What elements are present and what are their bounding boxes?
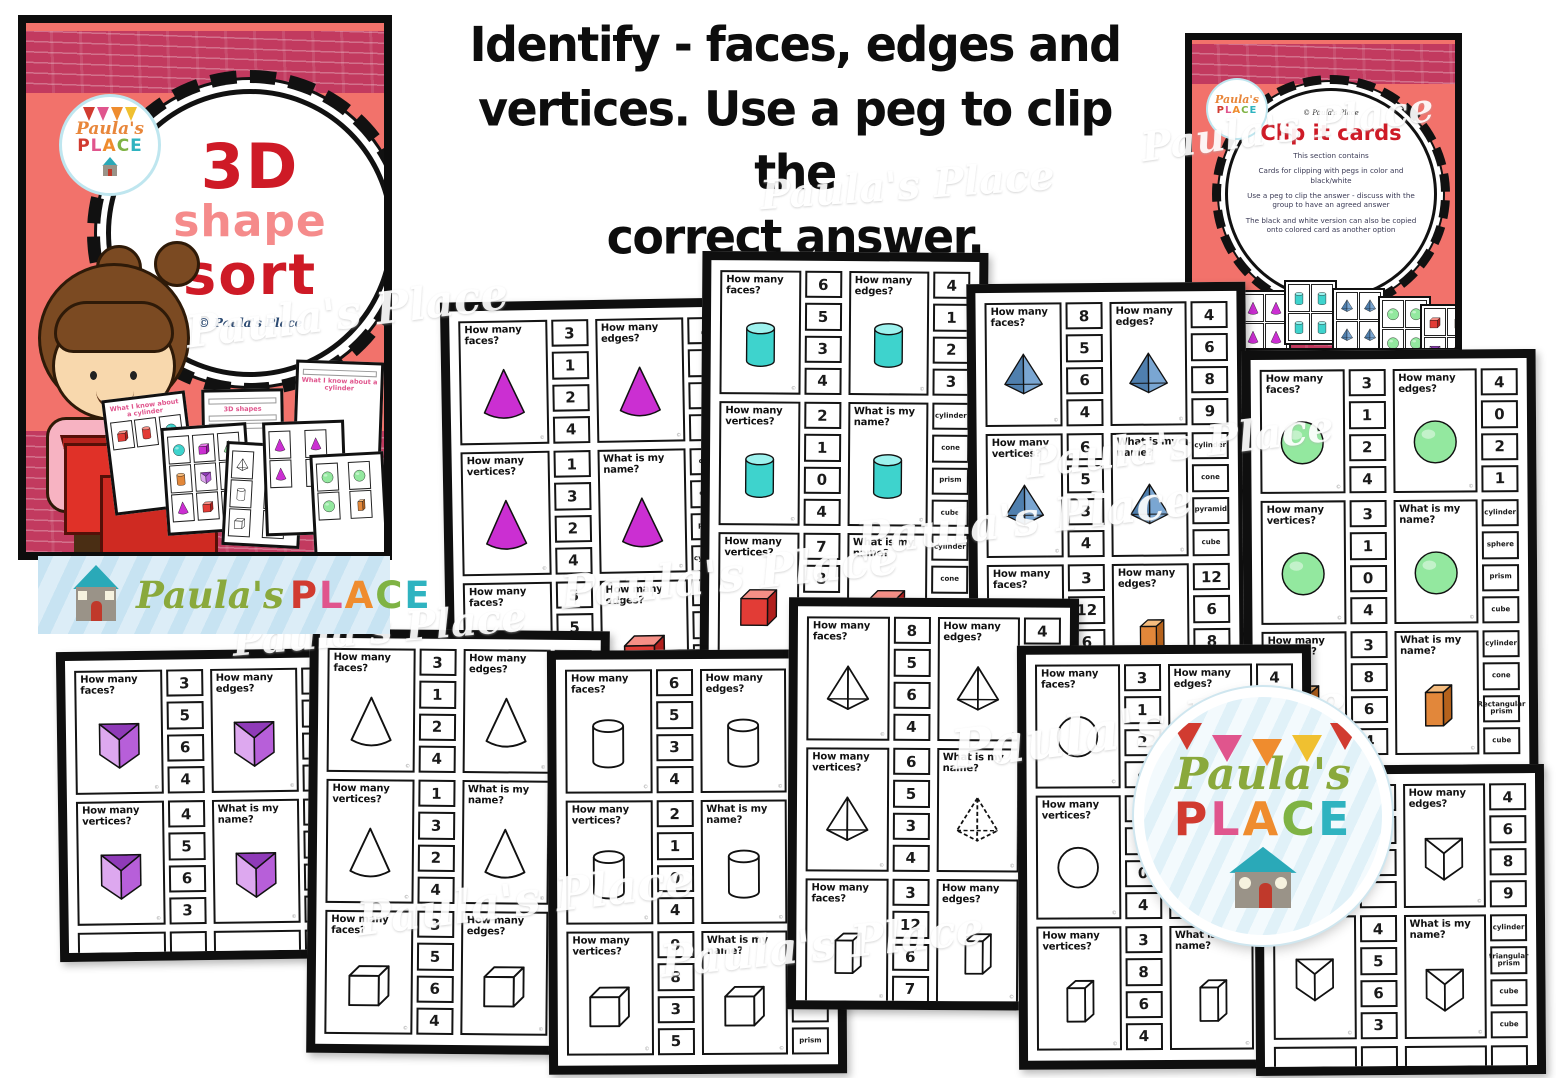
clip-card: How many faces? © 6534	[719, 270, 841, 395]
answer-option: 1	[933, 304, 970, 332]
card-question: What is my name?	[854, 407, 923, 429]
card-question: How many vertices?	[1042, 800, 1115, 822]
answer-options: 2104	[803, 402, 841, 526]
card-question: What is my name?	[603, 454, 680, 477]
house-icon	[64, 563, 128, 627]
card-question: How many faces?	[811, 883, 882, 905]
answer-option: 5	[166, 701, 203, 729]
answer-option: 4	[933, 272, 970, 300]
card-panel: What is my name? ©	[1394, 630, 1479, 755]
logo-script-text: Paula's	[1208, 94, 1266, 105]
answer-option: 6	[1191, 333, 1228, 361]
pyramid-thumbnail-icon	[1340, 328, 1354, 342]
answer-option: 8	[893, 617, 930, 644]
answer-option: 3	[551, 319, 588, 347]
cone-shape-icon	[342, 807, 397, 896]
card-question: How many faces?	[726, 275, 795, 297]
answer-option: 4	[1067, 530, 1104, 558]
cylinder-shape-icon	[863, 430, 913, 519]
answer-option: 3	[418, 812, 455, 840]
answer-options	[1491, 1045, 1529, 1076]
answer-option: 9	[657, 931, 694, 958]
clip-card: How many edges? © 4123	[848, 271, 970, 396]
sphere-thumbnail-icon	[1386, 307, 1400, 321]
clip-card: How many faces? © 3124	[327, 648, 457, 773]
copyright-mark: ©	[791, 386, 796, 392]
sphere-thumbnail-icon	[322, 499, 337, 514]
answer-option: 6	[1067, 433, 1104, 461]
clip-card: How many edges? © 4689	[1403, 783, 1527, 908]
answer-option: 8	[1065, 302, 1102, 330]
cube-shape-icon	[733, 560, 783, 649]
answer-options: 6534	[655, 669, 693, 793]
triprism-thumbnail-icon	[198, 470, 213, 485]
card-question: What is my name?	[1409, 919, 1480, 941]
answer-option: prism	[792, 1027, 829, 1054]
answer-option: 4	[555, 547, 592, 575]
copyright-mark: ©	[779, 1046, 784, 1052]
answer-option: 4	[1125, 1023, 1162, 1050]
clip-card: How many vertices? © 3104	[1261, 500, 1387, 625]
answer-option: 2	[1349, 434, 1386, 462]
clip-card: How many faces? © 6534	[565, 669, 693, 794]
triprism-shape-icon	[1419, 811, 1470, 900]
clip-title: Clip it cards	[1260, 121, 1401, 145]
copyright-mark: ©	[1336, 484, 1341, 490]
card-question: How many faces?	[993, 569, 1058, 591]
pyramid-shape-icon	[1126, 460, 1174, 549]
answer-option: 3	[1067, 498, 1104, 526]
answer-option: 4	[804, 367, 841, 395]
answer-option: 5	[656, 701, 693, 728]
answer-option: 6	[893, 748, 930, 775]
answer-options: 3564	[416, 911, 454, 1035]
worksheet-thumbnail-title: What I know about a cylinder	[301, 377, 377, 394]
answer-option: 1	[419, 681, 456, 709]
cube-thumbnail-icon	[200, 499, 215, 514]
copyright-mark: ©	[292, 914, 297, 920]
answer-option: cube	[1192, 529, 1229, 557]
card-question: What is my name?	[468, 785, 544, 807]
answer-option: 3	[555, 581, 592, 609]
copyright-mark: ©	[790, 517, 795, 523]
answer-options: 4123	[932, 272, 970, 396]
card-question: How many vertices?	[572, 805, 647, 827]
clip-card: How many edges? © 4021	[1392, 368, 1518, 493]
cylinder-thumbnail-icon	[1292, 291, 1306, 305]
card-question: How many vertices?	[467, 456, 544, 479]
answer-option: cube	[1490, 979, 1527, 1007]
answer-options: 4689	[1190, 301, 1228, 425]
triprism-shape-icon	[91, 697, 147, 786]
clip-card: How many faces? © 3564	[324, 910, 454, 1035]
mini-card	[1288, 284, 1310, 312]
sphere-thumbnail-icon	[171, 442, 186, 457]
cone-thumbnail-icon	[1269, 301, 1283, 315]
answer-option: 5	[1360, 947, 1397, 975]
answer-option: 8	[1191, 365, 1228, 393]
copyright-mark: ©	[539, 896, 544, 902]
answer-options: 1324	[417, 780, 455, 904]
cone-shape-icon	[614, 476, 671, 565]
cone-thumbnail-icon	[175, 500, 190, 515]
card-panel: What is my name? ©	[1393, 499, 1478, 624]
rprism-thumbnail-icon	[353, 497, 368, 512]
card-stack-thumbnail	[1420, 304, 1462, 355]
cylinder-shape-icon	[717, 827, 771, 916]
girl-fringe	[54, 301, 174, 353]
card-panel	[1404, 1045, 1487, 1076]
answer-option: 8	[1489, 848, 1526, 876]
card-question: How many edges?	[942, 884, 1013, 906]
answer-option: pyramid	[1192, 496, 1229, 524]
card-question: What is my name?	[853, 538, 922, 560]
card-panel: How many faces? ©	[719, 270, 800, 395]
copyright-mark: ©	[880, 732, 885, 738]
product-preview: Identify - faces, edges and vertices. Us…	[0, 0, 1556, 1078]
answer-option: cube	[1482, 596, 1519, 624]
mini-card	[171, 493, 195, 522]
cone-thumbnail-icon	[274, 467, 288, 481]
sphere-thumbnail-icon	[352, 468, 367, 483]
answer-option: 3	[804, 335, 841, 363]
answer-option: 6	[1193, 595, 1230, 623]
clip-card: How many edges? © 4689	[1109, 301, 1228, 426]
answer-option: 6	[1066, 367, 1103, 395]
cover-page: 3D shape sort © Paula's Place Paula's PL…	[18, 15, 392, 560]
answer-option: 3	[1068, 564, 1105, 592]
card-question: How many edges?	[1116, 306, 1181, 328]
answer-option: 3	[1350, 631, 1387, 659]
mini-card	[269, 459, 292, 488]
girl-eye	[130, 371, 137, 380]
card-panel: What is my name? ©	[1403, 914, 1486, 1039]
clip-credit: © Paula's Place	[1303, 109, 1359, 117]
cylinder-thumbnail-icon	[139, 425, 155, 441]
answer-options: 6534	[892, 748, 930, 872]
card-panel: How many vertices? ©	[986, 433, 1064, 558]
answer-option: 5	[1067, 465, 1104, 493]
mini-card	[192, 433, 216, 462]
cylinder-thumbnail-icon	[234, 486, 249, 501]
cylinder-shape-icon	[735, 298, 785, 387]
answer-options: 4563	[1359, 915, 1397, 1039]
copyright-mark: ©	[1111, 779, 1116, 785]
clip-card: How many faces? © 8564	[984, 302, 1103, 427]
answer-option: 3	[419, 649, 456, 677]
card-question: How many edges?	[469, 654, 545, 676]
rprism-shape-icon	[821, 906, 872, 995]
pyramid-shape-icon	[1125, 329, 1173, 418]
answer-options: 8564	[893, 617, 931, 741]
card-question: How many faces?	[333, 653, 409, 675]
copyright-mark: ©	[778, 915, 783, 921]
copyright-mark: ©	[1347, 1030, 1352, 1036]
answer-options: 31267	[891, 879, 929, 1003]
cover-credit: © Paula's Place	[198, 316, 303, 330]
triprism-shape-icon	[227, 696, 283, 785]
answer-options: 6534	[804, 271, 842, 395]
answer-option: 4	[416, 1007, 453, 1035]
clip-intro: This section contains	[1293, 151, 1369, 160]
answer-options: 3104	[1349, 500, 1387, 624]
card-question: How many vertices?	[332, 784, 408, 806]
cube-shape-icon	[341, 938, 396, 1027]
card-panel: What is my name? ©	[461, 780, 550, 905]
answer-option: 3	[892, 812, 929, 839]
card-question: What is my name?	[707, 936, 782, 958]
answer-option: sphere	[1482, 531, 1519, 559]
clip-card: How many faces? © 31267	[805, 878, 929, 1003]
card-question: What is my name?	[943, 753, 1014, 775]
logo-block-text: PLACE	[290, 574, 432, 617]
answer-option: cylinder	[1482, 499, 1519, 527]
card-question: How many vertices?	[992, 438, 1057, 460]
answer-option	[169, 931, 206, 959]
card-question: How many edges?	[855, 276, 924, 298]
answer-option: 0	[1350, 565, 1387, 593]
logo-script-text: Paula's	[136, 573, 284, 617]
cylinder-shape-icon	[734, 429, 784, 518]
mini-card	[1311, 313, 1333, 341]
pyramid-thumbnail-icon	[1340, 299, 1354, 313]
cone-thumbnail-icon	[273, 438, 287, 452]
clip-card: How many faces? © 3564	[74, 669, 204, 795]
cover-title-3d: 3D	[201, 136, 300, 198]
clip-card: How many vertices? © 1324	[460, 450, 592, 576]
card-question: How many vertices?	[1042, 931, 1115, 953]
card-panel: How many faces? ©	[984, 302, 1062, 427]
card-panel: How many edges? ©	[848, 271, 929, 396]
copyright-mark: ©	[404, 895, 409, 901]
answer-option: 1	[418, 780, 455, 808]
answer-option: 4	[892, 845, 929, 872]
cone-thumbnail-icon	[1269, 330, 1283, 344]
card-question: How many edges?	[943, 622, 1014, 644]
answer-option: cone	[932, 435, 969, 463]
card-panel	[1274, 1046, 1357, 1076]
answer-option: 3	[554, 482, 591, 510]
rprism-shape-icon	[1053, 954, 1106, 1043]
card-panel: How many edges? ©	[595, 317, 686, 443]
cube-thumbnail-icon	[196, 441, 211, 456]
answer-option: 4	[1024, 617, 1061, 644]
cone-shape-icon	[479, 677, 534, 766]
card-question: How many edges?	[467, 916, 543, 938]
pyramid-shape-icon	[953, 645, 1004, 734]
answer-option: 1	[1481, 465, 1518, 493]
answer-option: 4	[418, 745, 455, 773]
card-question: How many edges?	[1398, 373, 1471, 395]
answer-option	[1491, 1045, 1528, 1073]
answer-option: cylinder	[1482, 630, 1519, 658]
cone-shape-icon	[478, 808, 533, 897]
card-panel: How many vertices? ©	[1036, 795, 1121, 919]
answer-option: 4	[1066, 399, 1103, 427]
cube-shape-icon	[476, 939, 531, 1028]
answer-option: 3	[1123, 664, 1160, 691]
copyright-mark: ©	[1469, 614, 1474, 620]
answer-option: 6	[1489, 815, 1526, 843]
answer-option: 3	[1360, 1012, 1397, 1040]
card-panel: How many faces? ©	[324, 910, 413, 1035]
card-question: How many edges?	[1118, 568, 1183, 590]
answer-option: 6	[168, 865, 205, 893]
triprism-shape-icon	[228, 827, 284, 916]
card-panel: How many faces? ©	[806, 616, 889, 740]
card-panel: How many vertices? ©	[1036, 926, 1121, 1050]
pyramid-thumbnail-icon	[1363, 328, 1377, 342]
logo-block-text: PLACE	[1208, 105, 1266, 116]
sphere-shape-icon	[1276, 397, 1329, 486]
answer-option: 7	[803, 533, 840, 561]
answer-options: 6534	[1067, 433, 1105, 557]
card-question: How many faces?	[571, 674, 646, 696]
copyright-mark: ©	[1180, 547, 1185, 553]
answer-option: 3	[166, 669, 203, 697]
copyright-mark: ©	[1010, 732, 1015, 738]
headline-line-2: vertices. Use a peg to clip the	[440, 77, 1150, 205]
card-panel: How many faces? ©	[74, 670, 163, 795]
card-panel: How many vertices? ©	[1261, 500, 1346, 625]
answer-option: 2	[933, 336, 970, 364]
copyright-mark: ©	[1478, 1029, 1483, 1035]
copyright-mark: ©	[538, 1027, 543, 1033]
answer-option: 3	[169, 897, 206, 925]
card-question: How many faces?	[1041, 669, 1114, 691]
copyright-mark: ©	[541, 765, 546, 771]
answer-option: 3	[1348, 369, 1385, 397]
answer-option: 3	[892, 879, 929, 906]
card-panel	[78, 932, 167, 962]
card-question: How many vertices?	[82, 806, 158, 829]
mini-card	[110, 420, 135, 450]
answer-option: 3	[417, 911, 454, 939]
copyright-mark: ©	[1010, 863, 1015, 869]
rprism-shape-icon	[951, 907, 1002, 996]
answer-option: 4	[417, 876, 454, 904]
answer-options: 4563	[167, 800, 206, 925]
answer-option: 2	[554, 515, 591, 543]
copyright-mark: ©	[644, 915, 649, 921]
answer-option: 4	[656, 766, 693, 793]
copyright-mark: ©	[403, 1026, 408, 1032]
copyright-mark: ©	[644, 1046, 649, 1052]
answer-options: cylindersphereprismcube	[1482, 499, 1520, 623]
answer-option: 0	[657, 865, 694, 892]
answer-option: 5	[892, 780, 929, 807]
copyright-mark: ©	[542, 566, 547, 572]
answer-option: 0	[803, 466, 840, 494]
answer-options	[1360, 1046, 1398, 1076]
answer-option: 4	[1125, 892, 1162, 919]
answer-option: triangular prism	[1490, 946, 1527, 974]
mini-card	[317, 491, 340, 520]
answer-option: 2	[656, 800, 693, 827]
answer-option: 0	[1481, 400, 1518, 428]
house-icon	[1215, 847, 1311, 909]
mini-card	[1447, 308, 1462, 336]
answer-option: 6	[655, 669, 692, 696]
mini-card	[1288, 313, 1310, 341]
clip-card: What is my name? © cylindertriangular pr…	[1403, 914, 1527, 1039]
logo-script-text: Paula's	[1144, 755, 1382, 795]
answer-options: 3864	[1125, 926, 1163, 1050]
clip-card	[78, 931, 208, 962]
cylinder-thumbnail-icon	[1315, 291, 1329, 305]
answer-option: 2	[804, 402, 841, 430]
card-panel: How many faces? ©	[565, 669, 652, 793]
answer-options: cylindertriangular prismcubecube	[1490, 914, 1528, 1038]
sphere-shape-icon	[1409, 396, 1462, 485]
card-question: How many vertices?	[572, 936, 647, 958]
answer-option: 8	[657, 963, 694, 990]
answer-options: cylinderconeprismcube	[932, 403, 970, 527]
pyramid-shape-icon	[822, 775, 873, 864]
copyright-mark: ©	[540, 435, 545, 441]
card-panel: How many vertices? ©	[76, 801, 165, 926]
logo-block-text: PLACE	[1144, 795, 1382, 843]
copyright-mark: ©	[1468, 483, 1473, 489]
copyright-mark: ©	[1055, 548, 1060, 554]
card-panel: How many edges? ©	[1392, 368, 1477, 493]
card-panel: How many vertices? ©	[566, 800, 653, 924]
answer-option: 5	[1066, 334, 1103, 362]
answer-option: prism	[932, 467, 969, 495]
sphere-shape-icon	[1409, 527, 1462, 616]
clip-card: How many vertices? © 3864	[1036, 926, 1162, 1051]
answer-option: 2	[552, 384, 589, 412]
cube-shape-icon	[583, 959, 637, 1048]
pyramid-shape-icon	[1000, 330, 1048, 419]
paulas-place-logo-small: Paula's PLACE	[62, 97, 158, 193]
cylinder-thumbnail-icon	[173, 471, 188, 486]
card-stack-thumbnail	[1284, 280, 1337, 345]
card-question: How many edges?	[605, 584, 682, 607]
copyright-mark: ©	[1009, 994, 1014, 1000]
answer-option: 3	[657, 996, 694, 1023]
mini-card	[316, 463, 339, 492]
card-panel: How many faces? ©	[805, 878, 888, 1002]
answer-option: 4	[803, 498, 840, 526]
answer-option: 4	[1349, 466, 1386, 494]
answer-option: 5	[893, 649, 930, 676]
mini-card	[231, 450, 254, 479]
card-panel: What is my name? ©	[701, 931, 788, 1055]
card-question: What is my name?	[1400, 635, 1473, 657]
logo-block-text: PLACE	[62, 138, 158, 155]
answer-option: 8	[1350, 663, 1387, 691]
answer-option: 5	[804, 303, 841, 331]
mini-card	[167, 435, 191, 464]
answer-option: 5	[657, 1028, 694, 1055]
sphere-thumbnail-icon	[1386, 336, 1400, 350]
card-question: How many faces?	[991, 307, 1056, 329]
copyright-mark: ©	[1245, 1041, 1250, 1047]
card-panel: How many edges? ©	[935, 879, 1018, 1003]
headline: Identify - faces, edges and vertices. Us…	[440, 13, 1150, 269]
answer-option: cone	[931, 566, 968, 594]
card-question: What is my name?	[1117, 437, 1182, 459]
pyramid-shape-icon	[1001, 461, 1049, 550]
cylinder-thumbnail-icon	[1292, 320, 1306, 334]
mini-card	[229, 479, 252, 508]
card-question: What is my name?	[1399, 504, 1472, 526]
answer-options	[169, 931, 208, 962]
answer-option: 4	[167, 800, 204, 828]
copyright-mark: ©	[156, 916, 161, 922]
worksheet-thumbnail-title: 3D shapes	[207, 405, 277, 413]
